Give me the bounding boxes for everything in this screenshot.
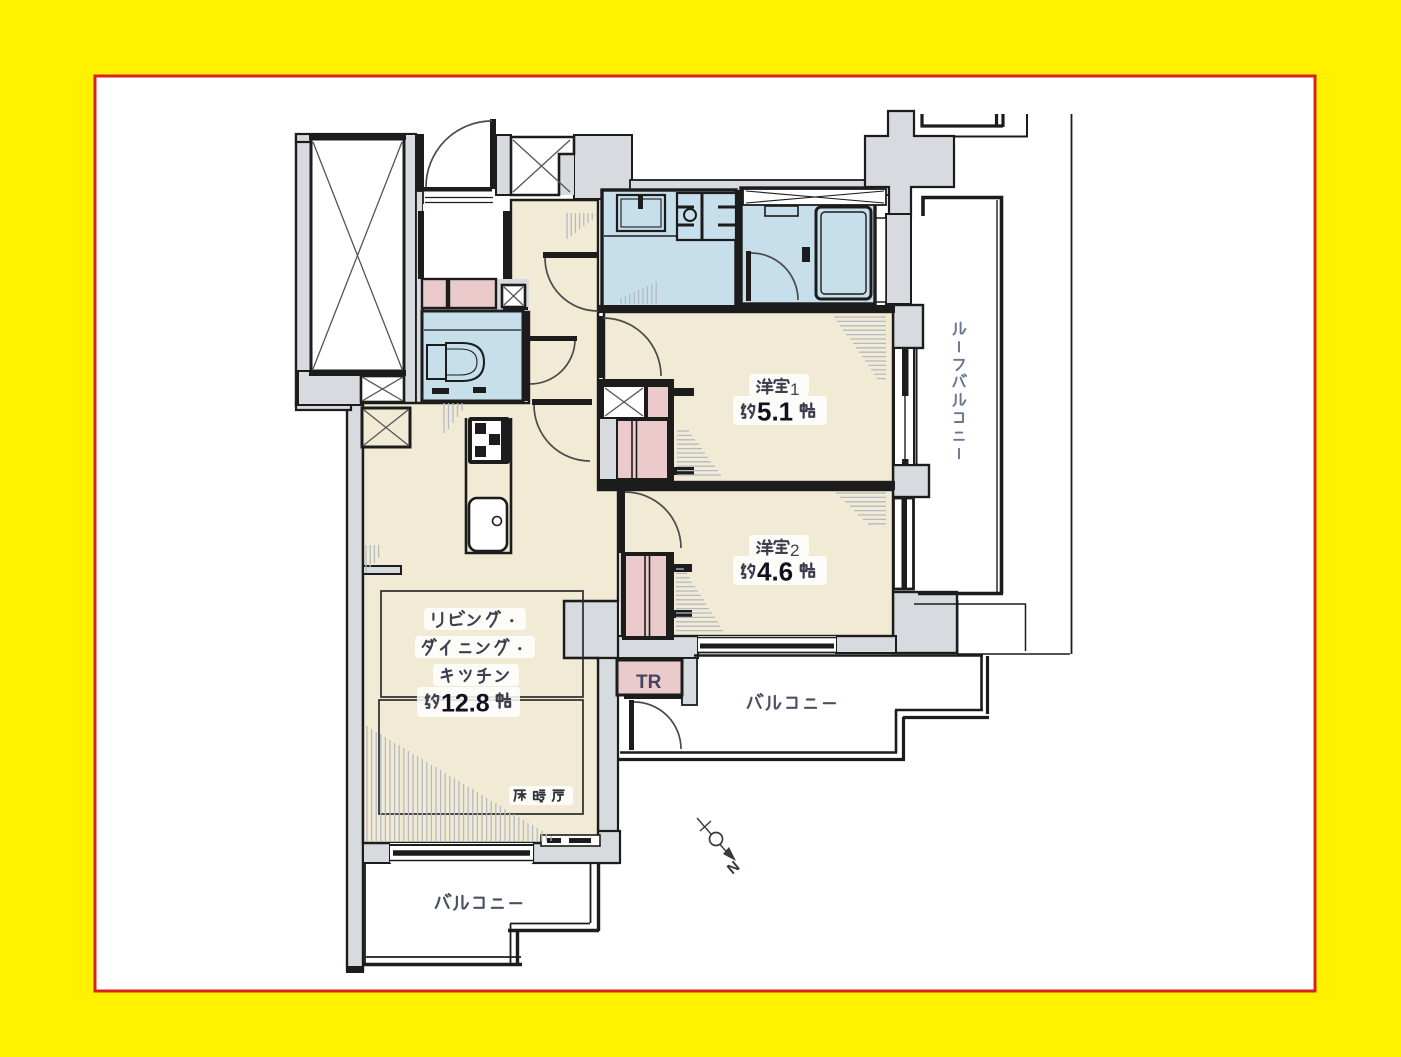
svg-text:TR: TR — [636, 672, 662, 693]
svg-text:12.8: 12.8 — [441, 690, 490, 718]
svg-text:4.6: 4.6 — [757, 557, 793, 587]
svg-text:5.1: 5.1 — [757, 397, 793, 427]
